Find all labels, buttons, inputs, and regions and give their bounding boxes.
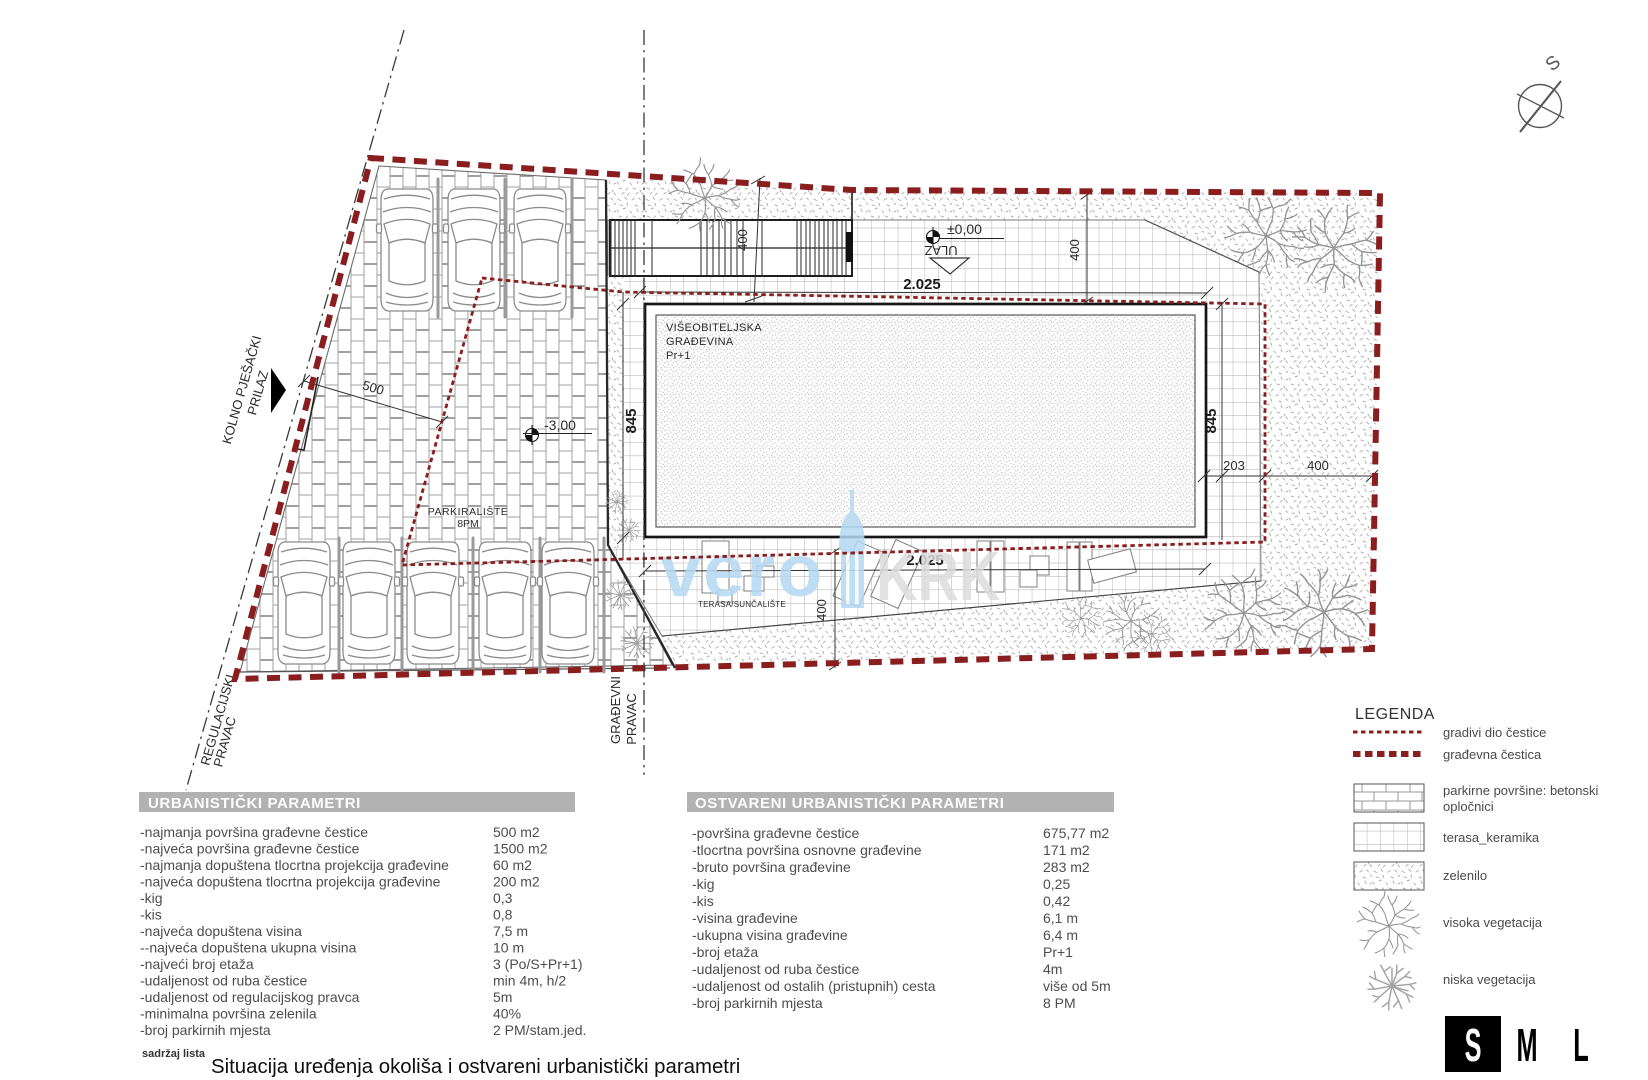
svg-text:-najmanja dopuštena tlocrtna p: -najmanja dopuštena tlocrtna projekcija … [140,857,449,873]
svg-text:171 m2: 171 m2 [1043,842,1090,858]
svg-text:GRAĐEVINA: GRAĐEVINA [666,336,734,348]
svg-text:-visina građevine: -visina građevine [692,910,798,926]
svg-text:-kig: -kig [692,876,715,892]
svg-text:-površina građevne čestice: -površina građevne čestice [692,825,860,841]
svg-text:-najveća površina građevne čes: -najveća površina građevne čestice [140,841,360,857]
svg-text:0,42: 0,42 [1043,893,1070,909]
svg-text:parkirne površine: betonski: parkirne površine: betonski [1443,783,1598,798]
svg-text:Pr+1: Pr+1 [666,350,691,362]
svg-text:-najveća dopuštena tlocrtna pr: -najveća dopuštena tlocrtna projekcija g… [140,874,441,890]
svg-text:7,5 m: 7,5 m [493,923,528,939]
svg-text:±0,00: ±0,00 [947,221,982,237]
svg-text:-tlocrtna površina osnovne gra: -tlocrtna površina osnovne građevine [692,842,922,858]
svg-text:L: L [1573,1019,1588,1071]
svg-text:-kis: -kis [692,893,714,909]
svg-text:PARKIRALIŠTE: PARKIRALIŠTE [428,505,509,518]
svg-text:2.025: 2.025 [903,276,941,293]
svg-text:203: 203 [1223,458,1245,473]
svg-text:-kig: -kig [140,890,163,906]
svg-text:8 PM: 8 PM [1043,995,1076,1011]
svg-text:S: S [1465,1019,1482,1071]
svg-text:GRAĐEVNI: GRAĐEVNI [608,676,623,744]
svg-text:sadržaj lista: sadržaj lista [142,1048,206,1060]
svg-text:60 m2: 60 m2 [493,857,532,873]
svg-text:gradivi dio čestice: gradivi dio čestice [1443,725,1546,740]
svg-text:8PM: 8PM [457,518,479,530]
svg-text:-najveći broj etaža: -najveći broj etaža [140,956,254,972]
svg-text:675,77 m2: 675,77 m2 [1043,825,1109,841]
svg-text:više od 5m: više od 5m [1043,978,1111,994]
svg-text:3 (Po/S+Pr+1): 3 (Po/S+Pr+1) [493,956,583,972]
svg-text:-3,00: -3,00 [544,417,576,433]
svg-text:4m: 4m [1043,961,1062,977]
svg-text:URBANISTIČKI PARAMETRI: URBANISTIČKI PARAMETRI [148,794,361,812]
svg-text:-najveća dopuštena visina: -najveća dopuštena visina [140,923,302,939]
svg-text:LEGENDA: LEGENDA [1355,706,1435,723]
svg-text:-udaljenost od ruba čestice: -udaljenost od ruba čestice [140,973,308,989]
svg-text:opločnici: opločnici [1443,799,1494,814]
svg-text:ULAZ: ULAZ [924,243,957,258]
svg-text:2 PM/stam.jed.: 2 PM/stam.jed. [493,1022,586,1038]
svg-text:6,4 m: 6,4 m [1043,927,1078,943]
svg-text:40%: 40% [493,1006,521,1022]
svg-text:400: 400 [735,229,750,251]
svg-text:VIŠEOBITELJSKA: VIŠEOBITELJSKA [666,321,762,334]
svg-text:M: M [1516,1019,1537,1071]
svg-text:1500 m2: 1500 m2 [493,841,548,857]
svg-text:-udaljenost od ostalih (pristu: -udaljenost od ostalih (pristupnih) cest… [692,978,936,994]
svg-text:0,3: 0,3 [493,890,513,906]
svg-text:400: 400 [1067,239,1082,261]
svg-text:PRAVAC: PRAVAC [624,693,639,745]
svg-text:terasa_keramika: terasa_keramika [1443,830,1540,845]
svg-text:-kis: -kis [140,907,162,923]
svg-text:0,8: 0,8 [493,907,513,923]
svg-text:-bruto površina građevine: -bruto površina građevine [692,859,851,875]
svg-text:-udaljenost od regulacijskog p: -udaljenost od regulacijskog pravca [140,989,360,1005]
svg-text:min 4m, h/2: min 4m, h/2 [493,973,566,989]
svg-text:0,25: 0,25 [1043,876,1070,892]
svg-text:OSTVARENI URBANISTIČKI PARAMET: OSTVARENI URBANISTIČKI PARAMETRI [695,794,1004,812]
svg-text:-broj parkirnih mjesta: -broj parkirnih mjesta [692,995,823,1011]
svg-text:zelenilo: zelenilo [1443,868,1487,883]
svg-text:niska vegetacija: niska vegetacija [1443,972,1536,987]
svg-text:visoka vegetacija: visoka vegetacija [1443,915,1543,930]
svg-text:-udaljenost od ruba čestice: -udaljenost od ruba čestice [692,961,860,977]
svg-text:200 m2: 200 m2 [493,874,540,890]
svg-text:građevna čestica: građevna čestica [1443,747,1542,762]
svg-text:-broj etaža: -broj etaža [692,944,758,960]
svg-text:845: 845 [1203,408,1220,433]
svg-text:5m: 5m [493,989,512,1005]
svg-text:vero: vero [660,529,824,612]
svg-text:400: 400 [1307,458,1329,473]
svg-text:-najmanja površina građevne če: -najmanja površina građevne čestice [140,824,368,840]
svg-text:283 m2: 283 m2 [1043,859,1090,875]
svg-text:-minimalna površina zelenila: -minimalna površina zelenila [140,1006,317,1022]
svg-text:500 m2: 500 m2 [493,824,540,840]
svg-text:6,1 m: 6,1 m [1043,910,1078,926]
svg-text:-broj parkirnih mjesta: -broj parkirnih mjesta [140,1022,271,1038]
svg-text:-ukupna visina građevine: -ukupna visina građevine [692,927,848,943]
svg-text:--najveća dopuštena ukupna vis: --najveća dopuštena ukupna visina [140,940,357,956]
svg-text:Situacija uređenja okoliša i o: Situacija uređenja okoliša i ostvareni u… [211,1056,740,1078]
svg-text:845: 845 [623,408,640,433]
svg-text:10 m: 10 m [493,940,524,956]
svg-text:Pr+1: Pr+1 [1043,944,1073,960]
